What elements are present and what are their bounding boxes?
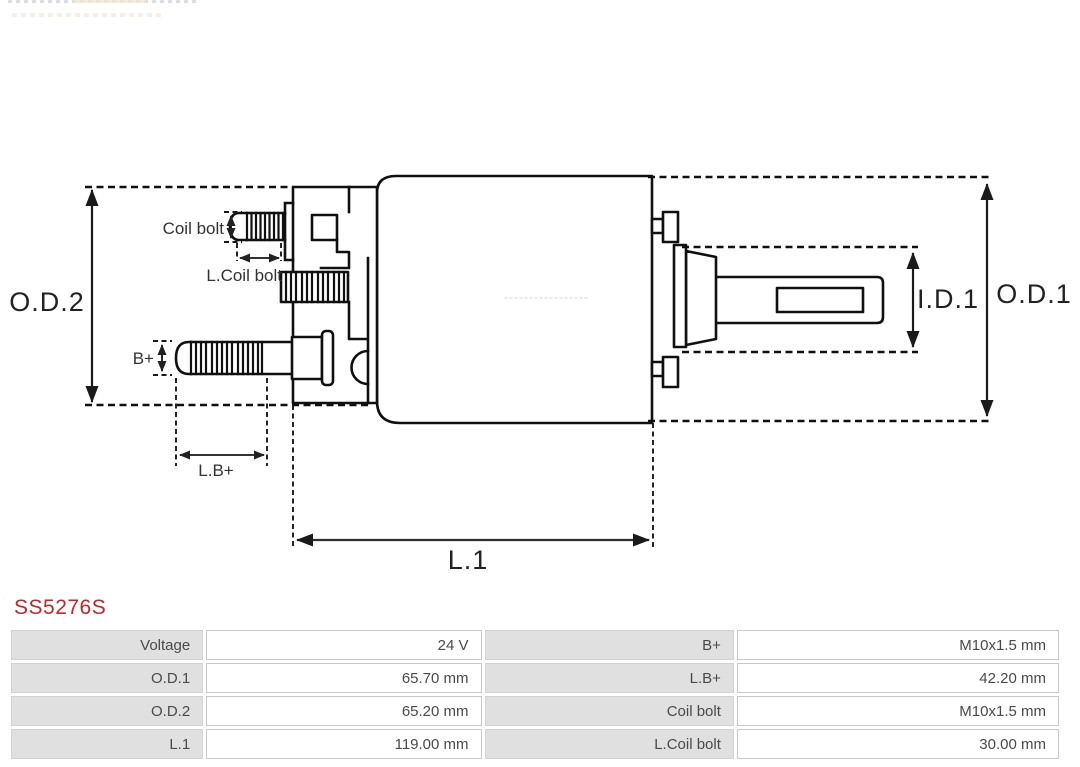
- spec-label: O.D.2: [11, 696, 203, 726]
- part-number: SS5276S: [14, 596, 106, 620]
- dim-label-od2: O.D.2: [9, 287, 85, 317]
- spec-value: 30.00 mm: [737, 729, 1059, 759]
- spec-row: Voltage 24 V B+ M10x1.5 mm: [11, 630, 1059, 660]
- spec-value: 42.20 mm: [737, 663, 1059, 693]
- spec-label: L.Coil bolt: [485, 729, 734, 759]
- dim-label-l-coil-bolt: L.Coil bolt: [206, 266, 282, 285]
- spec-value: M10x1.5 mm: [737, 630, 1059, 660]
- dim-label-b-plus: B+: [133, 349, 154, 368]
- shaft-slot: [777, 288, 863, 312]
- spec-row: O.D.2 65.20 mm Coil bolt M10x1.5 mm: [11, 696, 1059, 726]
- spec-label: O.D.1: [11, 663, 203, 693]
- rear-terminal-tab-bottom: [652, 357, 678, 387]
- spec-value: 119.00 mm: [206, 729, 481, 759]
- spec-table: Voltage 24 V B+ M10x1.5 mm O.D.1 65.70 m…: [8, 627, 1062, 762]
- plunger-shaft: [674, 245, 883, 347]
- spec-row: L.1 119.00 mm L.Coil bolt 30.00 mm: [11, 729, 1059, 759]
- spec-label: L.1: [11, 729, 203, 759]
- spec-value: 65.70 mm: [206, 663, 481, 693]
- dim-label-l1: L.1: [448, 545, 489, 575]
- thread-hatch: [247, 213, 283, 240]
- b-plus-stud: [176, 331, 333, 385]
- thread-hatch: [191, 342, 262, 374]
- spec-value: M10x1.5 mm: [737, 696, 1059, 726]
- spec-row: O.D.1 65.70 mm L.B+ 42.20 mm: [11, 663, 1059, 693]
- spec-label: B+: [485, 630, 734, 660]
- solenoid-main-body: [377, 176, 652, 423]
- page: O.D.2 O.D.1 I.D.1 L.1 Coil bolt L.Coil b…: [0, 0, 1080, 767]
- dim-label-id1: I.D.1: [917, 284, 979, 314]
- dim-label-l-b-plus: L.B+: [198, 461, 234, 480]
- spec-label: L.B+: [485, 663, 734, 693]
- washer: [322, 331, 333, 385]
- spec-value: 24 V: [206, 630, 481, 660]
- spec-value: 65.20 mm: [206, 696, 481, 726]
- solenoid-diagram: O.D.2 O.D.1 I.D.1 L.1 Coil bolt L.Coil b…: [0, 0, 1080, 590]
- dim-label-od1: O.D.1: [996, 279, 1072, 309]
- spec-label: Coil bolt: [485, 696, 734, 726]
- rear-terminal-tab-top: [652, 212, 678, 242]
- dim-label-coil-bolt: Coil bolt: [163, 219, 225, 238]
- coil-bolt-stud: [230, 213, 285, 240]
- hex-nut: [292, 337, 322, 379]
- spec-label: Voltage: [11, 630, 203, 660]
